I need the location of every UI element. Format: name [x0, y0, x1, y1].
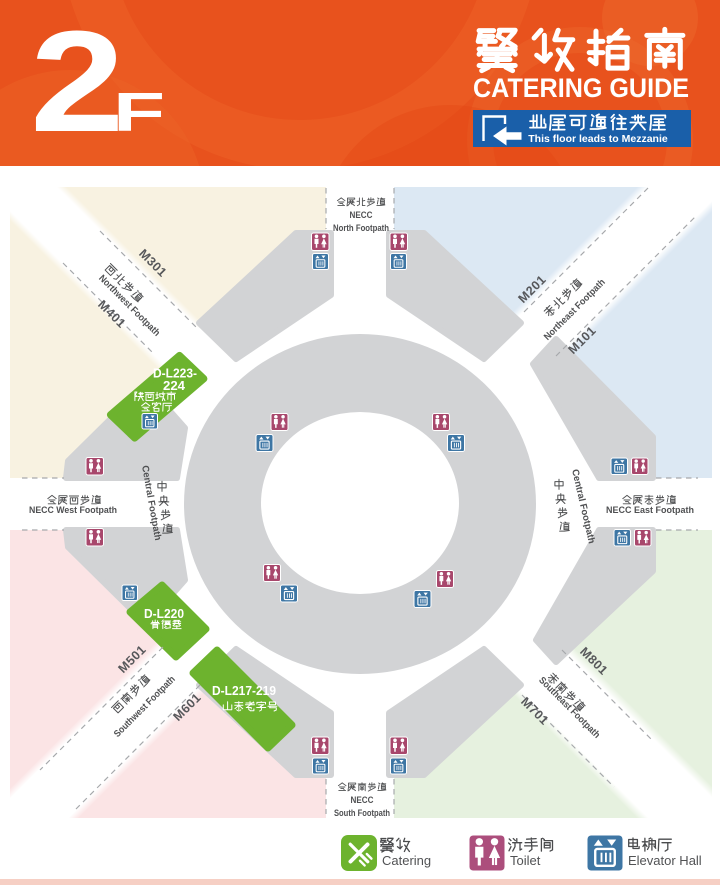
svg-text:D-L217-219: D-L217-219: [212, 684, 276, 698]
svg-text:Elevator Hall: Elevator Hall: [628, 853, 702, 868]
svg-text:F: F: [113, 82, 165, 143]
svg-text:CATERING GUIDE: CATERING GUIDE: [473, 73, 689, 103]
svg-text:NECC: NECC: [351, 795, 374, 806]
svg-text:Central Footpath: Central Footpath: [569, 468, 597, 545]
svg-text:Catering: Catering: [382, 853, 431, 868]
svg-text:224: 224: [163, 379, 185, 393]
svg-text:D-L220: D-L220: [144, 607, 184, 621]
svg-text:This floor leads to Mezzanie: This floor leads to Mezzanie: [528, 133, 668, 145]
svg-text:North Footpath: North Footpath: [333, 223, 389, 234]
svg-text:NECC West Footpath: NECC West Footpath: [29, 505, 117, 516]
svg-text:NECC East Footpath: NECC East Footpath: [606, 505, 694, 516]
svg-text:2: 2: [30, 1, 125, 162]
svg-text:South Footpath: South Footpath: [334, 808, 390, 819]
svg-text:NECC: NECC: [350, 210, 373, 221]
svg-text:Toilet: Toilet: [510, 853, 541, 868]
